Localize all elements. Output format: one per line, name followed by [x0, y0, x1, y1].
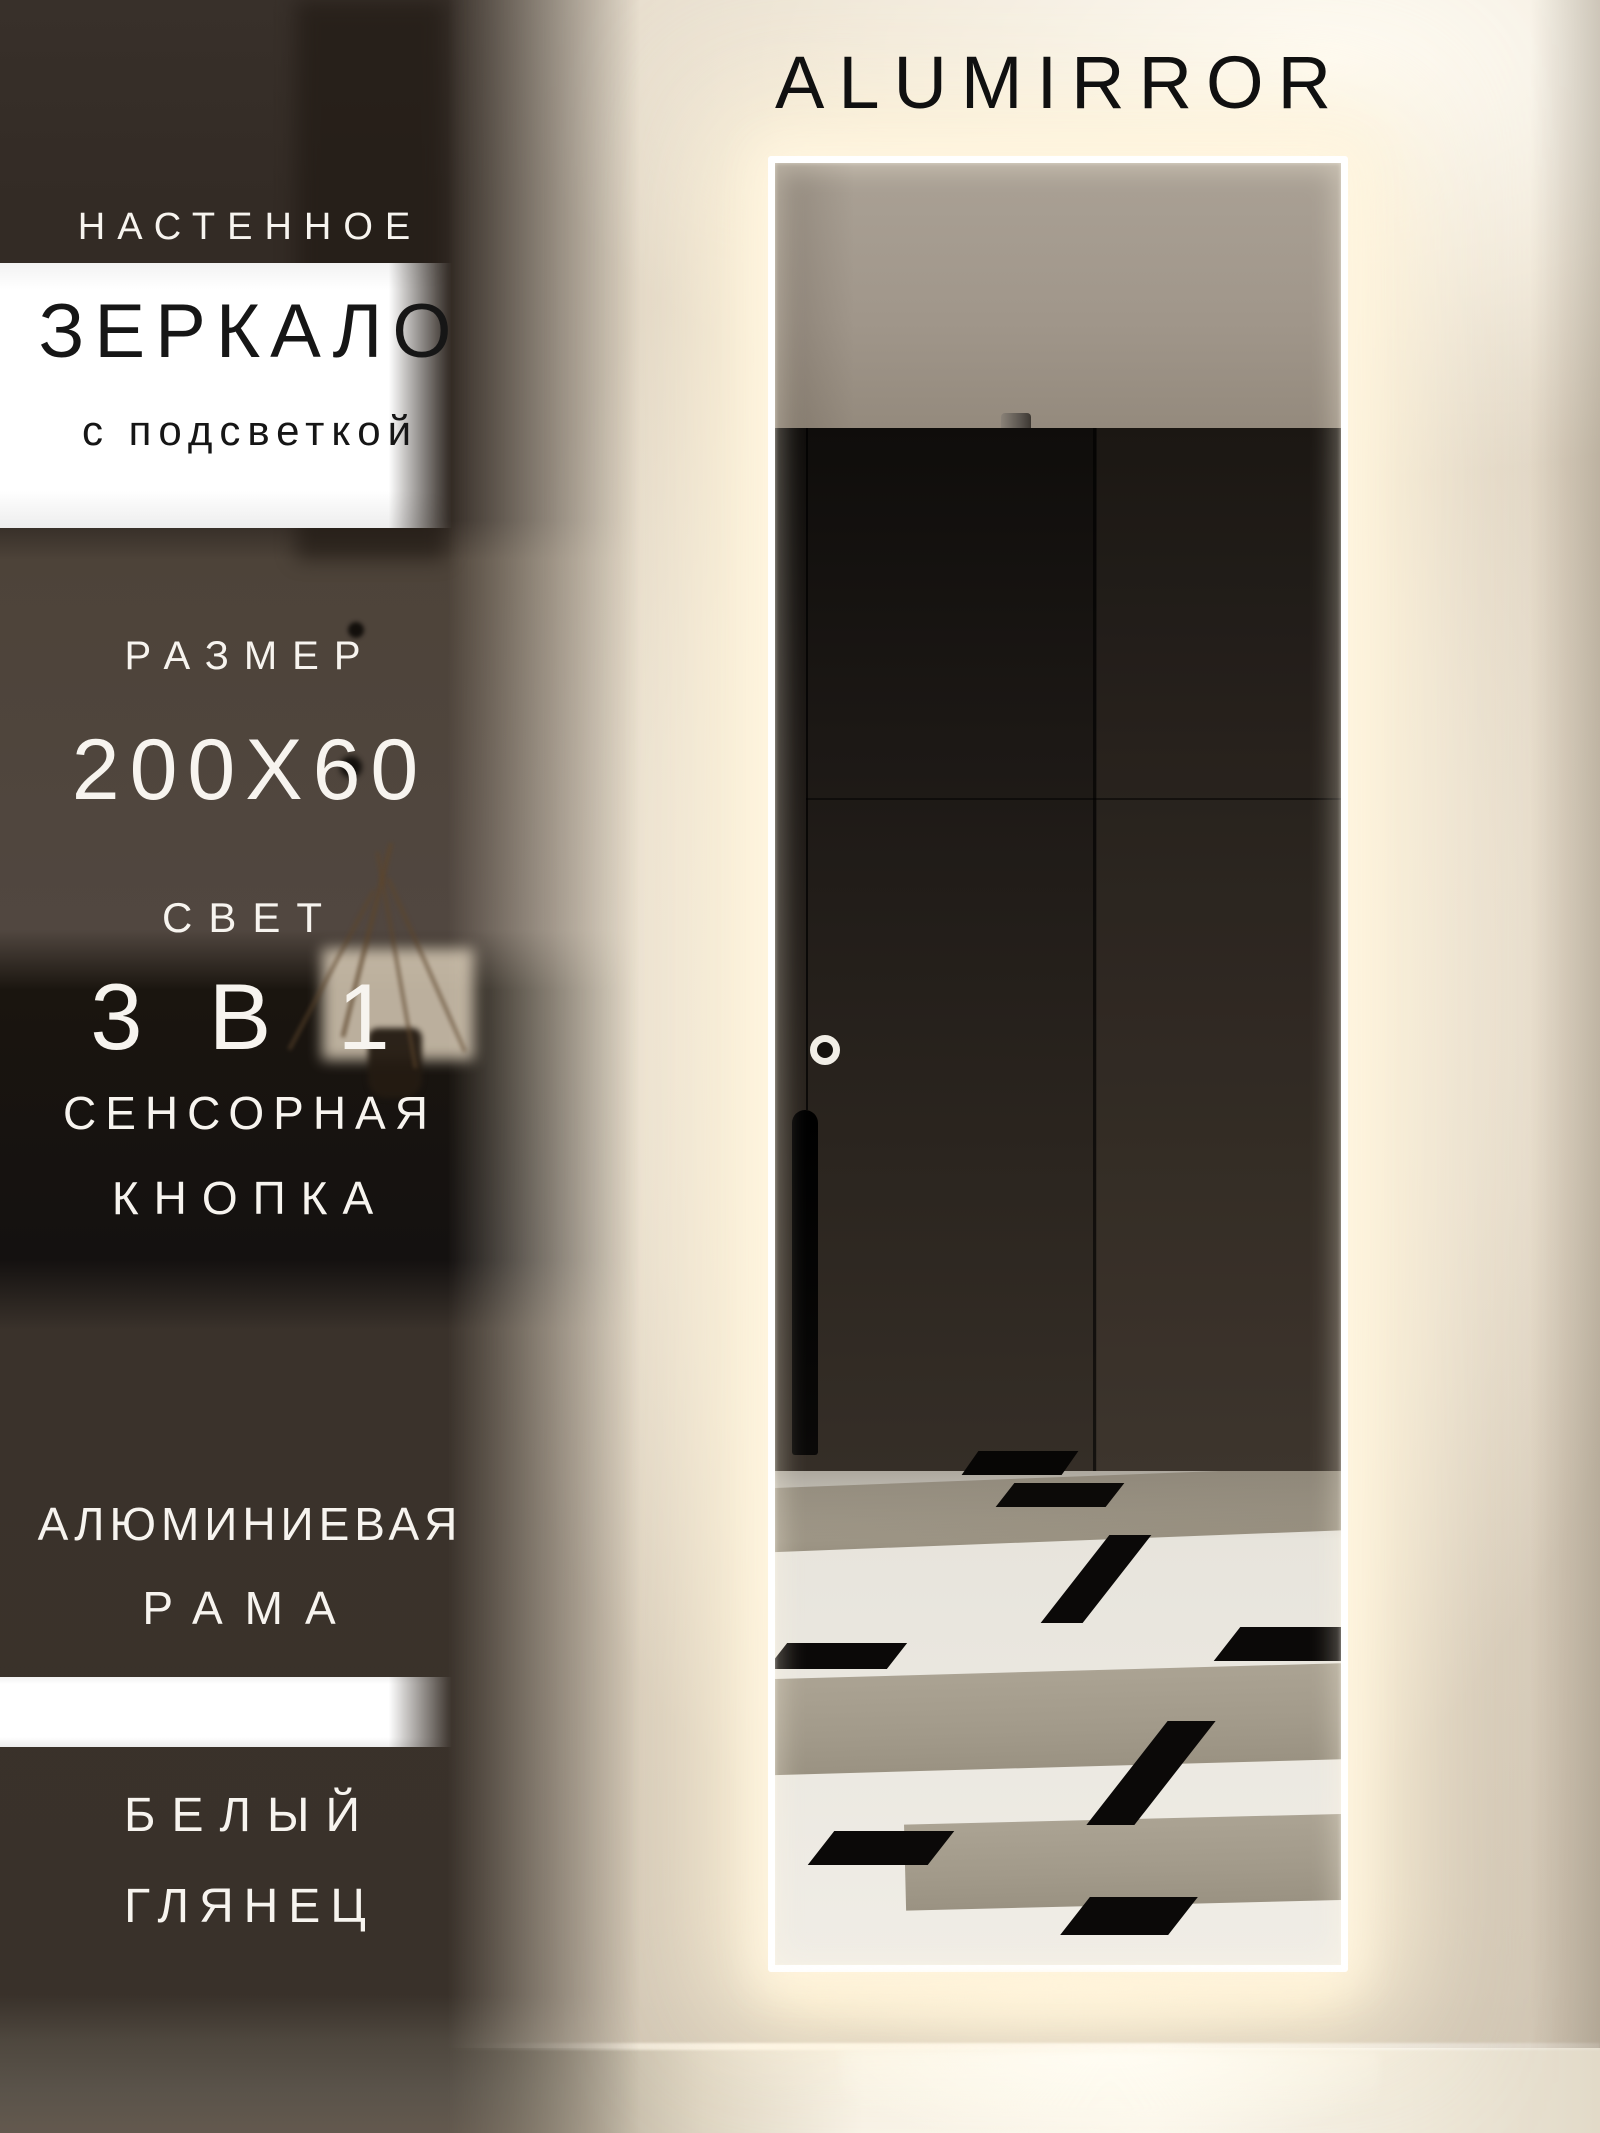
brand-title: ALUMIRROR [770, 46, 1350, 120]
label-wall-type: НАСТЕННОЕ [0, 208, 500, 246]
label-finish-line1: БЕЛЫЙ [0, 1792, 500, 1840]
door-seam [806, 428, 808, 1110]
wardrobe-panel-seam-horizontal [806, 798, 1341, 800]
label-finish-line2: ГЛЯНЕЦ [0, 1883, 500, 1931]
reflected-marble-floor [775, 1471, 1341, 1965]
marble-black-accent [775, 1643, 907, 1669]
label-frame-line2: РАМА [0, 1585, 500, 1631]
led-mirror [768, 156, 1348, 1972]
wardrobe-right-panel [1097, 428, 1341, 1471]
label-touch-line1: СЕНСОРНАЯ [0, 1090, 500, 1136]
floor-light-pool [840, 2050, 1380, 2133]
white-band-bottom [0, 1677, 452, 1747]
door-lock [810, 1035, 840, 1065]
label-touch-line2: КНОПКА [0, 1175, 500, 1221]
floor-shadow [775, 1471, 1341, 1541]
label-size: РАЗМЕР [0, 636, 500, 676]
label-light: СВЕТ [0, 897, 500, 939]
marble-black-accent [1041, 1535, 1152, 1623]
wall-glow-under-mirror [760, 1975, 1360, 2050]
wall-right-shadow [1530, 0, 1600, 2133]
label-product-qualifier: с подсветкой [0, 410, 500, 452]
door-handle [792, 1110, 818, 1455]
wardrobe-panel-seam-vertical [1093, 428, 1096, 1471]
marble-black-accent [1214, 1627, 1341, 1661]
label-product: ЗЕРКАЛО [0, 294, 500, 370]
label-frame-line1: АЛЮМИНИЕВАЯ [0, 1501, 500, 1547]
marble-grey-band [775, 1663, 1341, 1776]
door-bottom-shadow [962, 1451, 1079, 1475]
reflected-ceiling [775, 163, 1341, 428]
mirror-reflection [775, 163, 1341, 1965]
value-size: 200X60 [0, 727, 500, 813]
product-photo: НАСТЕННОЕ ЗЕРКАЛО с подсветкой РАЗМЕР 20… [0, 0, 1600, 2133]
value-light-modes: 3 В 1 [0, 970, 500, 1064]
